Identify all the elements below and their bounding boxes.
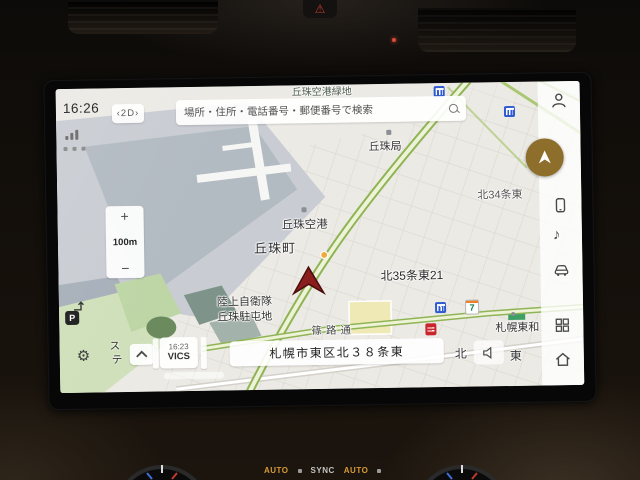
climate-seat-icon [377,469,381,473]
air-vent-right [418,8,576,52]
hazard-light-button[interactable]: ⚠ [303,0,337,18]
current-address-bar[interactable]: 札幌市東区北３８条東 [230,338,444,366]
route-bar [164,372,224,380]
search-bar [176,96,466,126]
vics-info-badge: 16:23 VICS [159,337,197,369]
zoom-in-button[interactable]: + [120,209,128,223]
zoom-out-button[interactable]: − [121,261,129,275]
map-label-block-ne35: 北35条東21 [380,266,443,284]
home-button[interactable] [555,351,571,367]
climate-knob-left[interactable] [112,449,212,480]
apps-grid-button[interactable] [554,317,570,333]
vehicle-settings-button[interactable] [553,261,569,277]
bank-poi-icon [435,302,446,313]
status-dots-icon [63,147,85,151]
poi-marker-towa [511,312,515,316]
map-label-post-office: 丘珠局 [368,138,401,155]
poi-marker-airport [301,207,306,212]
phone-button[interactable] [552,197,568,213]
drawer-chevron-button[interactable] [130,344,154,365]
clock: 16:26 [63,100,100,116]
map-label-frag-higashi: 東 [510,347,522,364]
settings-gear-button[interactable]: ⚙ [77,349,91,364]
climate-auto-right-button[interactable]: AUTO [344,466,369,475]
drawer-tab-left[interactable] [153,339,159,369]
map-label-greenbelt: 丘珠空港緑地 [292,82,352,98]
navigation-arrow-icon [535,147,555,167]
traffic-signal-icon [321,251,328,258]
map-label-jsdf-2: 丘珠駐屯地 [217,308,272,325]
climate-sync-button[interactable]: SYNC [311,466,335,475]
map-label-frag-te: テ [112,352,123,367]
map-scale-label: 100m [113,236,137,247]
map-zoom-control: + 100m − [105,206,144,279]
climate-center-controls: AUTO SYNC AUTO [264,466,381,475]
map-label-airport: 丘珠空港 [282,216,328,233]
climate-fan-icon [298,469,302,473]
map-label-block-ne34: 北34条東 [477,186,522,203]
bank-poi-icon [504,106,515,117]
vics-label: VICS [168,352,190,363]
speaker-muted-icon [481,346,496,359]
profile-button[interactable] [551,92,567,108]
climate-knob-right[interactable] [412,449,512,480]
map-label-frag-kita: 北 [455,345,467,362]
climate-auto-left-button[interactable]: AUTO [264,466,289,475]
map-label-towa: 札幌東和 [495,319,539,336]
store-poi-icon [425,323,436,335]
view-mode-2d-button[interactable]: ‹2D› [112,104,144,124]
media-music-button[interactable]: ♪ [553,227,569,243]
screen-bezel: 丘珠空港緑地 丘珠局 丘珠空港 丘珠町 北35条東21 陸上自衛隊 丘珠駐屯地 … [43,72,596,411]
signal-icon [65,129,81,140]
seven-eleven-poi-icon: 7 [465,300,479,315]
mute-button[interactable] [474,340,504,364]
map-label-town: 丘珠町 [254,237,296,257]
map-label-frag-su: ス [110,338,121,353]
poi-marker-post [386,130,391,135]
air-vent-left [68,0,218,34]
infotainment-display: 丘珠空港緑地 丘珠局 丘珠空港 丘珠町 北35条東21 陸上自衛隊 丘珠駐屯地 … [43,72,596,411]
map-label-shinoro: 篠路通 [311,322,355,338]
search-input[interactable] [182,101,448,119]
navigation-screen: 丘珠空港緑地 丘珠局 丘珠空港 丘珠町 北35条東21 陸上自衛隊 丘珠駐屯地 … [56,81,585,393]
dashboard: ⚠ [0,0,640,480]
search-icon [448,102,460,114]
parking-layer-button[interactable]: P [65,311,79,325]
parking-arrow-icon [73,301,85,311]
chevron-up-icon [135,350,149,359]
indicator-led [392,38,396,42]
drawer-tab-right[interactable] [200,337,207,369]
